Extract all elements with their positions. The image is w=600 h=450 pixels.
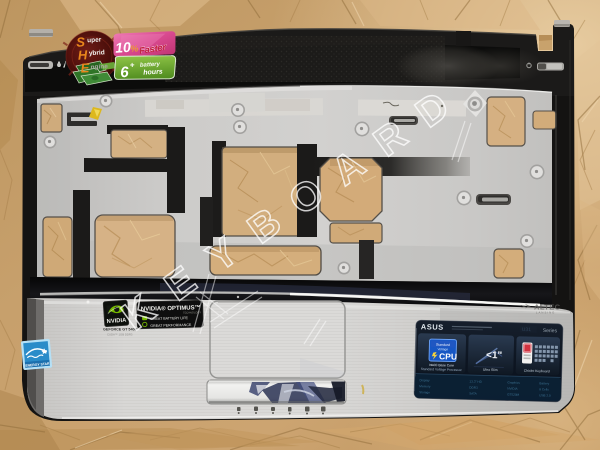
svg-text:hours: hours (143, 69, 163, 77)
svg-text:USB 3.0: USB 3.0 (539, 393, 551, 397)
svg-text:DDR3: DDR3 (469, 386, 478, 390)
svg-text:13.3" HD: 13.3" HD (469, 380, 482, 384)
svg-text:E: E (80, 60, 90, 75)
svg-text:NVIDIA: NVIDIA (507, 387, 518, 391)
svg-text:U31: U31 (522, 327, 532, 333)
svg-text:SATA: SATA (469, 392, 478, 396)
svg-text:8 Cells: 8 Cells (539, 387, 549, 391)
svg-text:battery: battery (140, 62, 161, 69)
svg-text:Memory: Memory (419, 384, 431, 388)
svg-text:CPU: CPU (439, 351, 457, 361)
svg-text:LANSING: LANSING (536, 311, 555, 315)
svg-text:uper: uper (87, 36, 102, 44)
svg-text:ngine: ngine (90, 63, 108, 71)
svg-text:Display: Display (419, 378, 430, 382)
svg-text:10: 10 (115, 39, 132, 56)
svg-text:+: + (130, 61, 135, 70)
svg-text:Series: Series (543, 328, 558, 334)
svg-text:Battery: Battery (539, 381, 549, 385)
svg-text:Ultra Slim: Ultra Slim (483, 368, 498, 372)
svg-text:ybrid: ybrid (89, 49, 105, 57)
svg-text:Graphics: Graphics (507, 381, 520, 385)
svg-text:Chiclet Keyboard: Chiclet Keyboard (524, 369, 550, 374)
svg-text:<1": <1" (486, 350, 503, 361)
svg-text:CUDA™ 1GB DDR3: CUDA™ 1GB DDR3 (107, 333, 133, 337)
svg-text:ASUS: ASUS (421, 322, 444, 332)
svg-text:Storage: Storage (419, 390, 430, 394)
svg-text:GT520M: GT520M (507, 393, 520, 397)
svg-text:%: % (130, 43, 139, 53)
svg-text:6: 6 (120, 64, 130, 81)
